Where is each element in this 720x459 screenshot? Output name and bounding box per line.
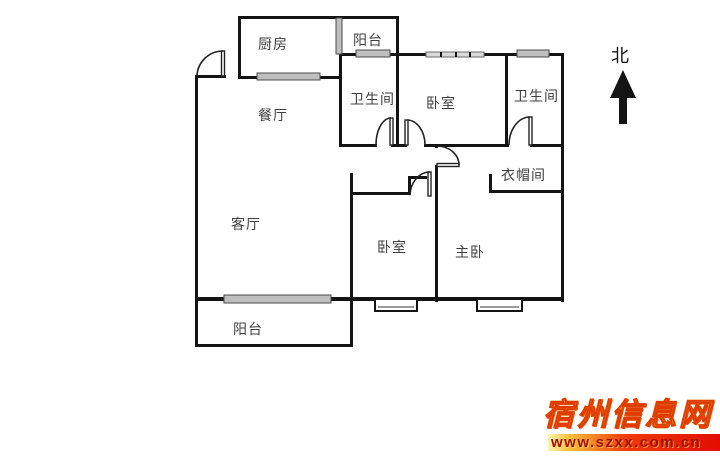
watermark-site-name: 宿州信息网	[543, 396, 713, 433]
watermark-site-url: www.szxx.com.cn	[551, 434, 701, 451]
master-bedroom-bay-window	[477, 299, 522, 311]
kitchen-window	[257, 73, 320, 80]
room-label-bathroom-1: 卫生间	[350, 92, 395, 106]
bedroom2-bay-window	[375, 299, 417, 311]
windows	[224, 18, 549, 311]
room-label-balcony-top: 阳台	[353, 33, 383, 47]
floorplan-drawing	[0, 0, 720, 459]
compass-north-label: 北	[611, 47, 629, 65]
bathroom2-door	[509, 117, 532, 145]
room-label-bathroom-2: 卫生间	[514, 89, 559, 103]
bathroom2-window	[517, 50, 549, 57]
room-label-bedroom-top: 卧室	[426, 96, 456, 110]
floorplan-canvas: 厨房 阳台 卫生间 卧室 卫生间 餐厅 客厅 衣帽间 卧室 主卧 阳台 北 宿州…	[0, 0, 720, 459]
bathroom1-door	[376, 118, 393, 145]
room-label-balcony-bottom: 阳台	[233, 322, 263, 336]
room-label-bedroom-2: 卧室	[377, 240, 407, 254]
top-balcony-window	[356, 50, 390, 57]
room-label-dining-room: 餐厅	[258, 108, 288, 122]
doors	[197, 51, 532, 196]
top-bedroom-door	[405, 120, 425, 145]
kitchen-balcony-divider-window	[336, 18, 342, 54]
room-label-cloakroom: 衣帽间	[501, 168, 546, 182]
room-label-kitchen: 厨房	[258, 37, 288, 51]
watermark-url-bar: www.szxx.com.cn	[548, 434, 720, 451]
living-room-window	[224, 295, 331, 303]
master-bedroom-door	[437, 146, 459, 167]
room-label-living-room: 客厅	[231, 217, 261, 231]
bedroom2-door	[410, 172, 431, 196]
north-arrow-icon	[610, 70, 636, 124]
room-label-master-bedroom: 主卧	[455, 245, 485, 259]
top-bedroom-window	[426, 52, 484, 57]
entry-door	[197, 51, 225, 76]
